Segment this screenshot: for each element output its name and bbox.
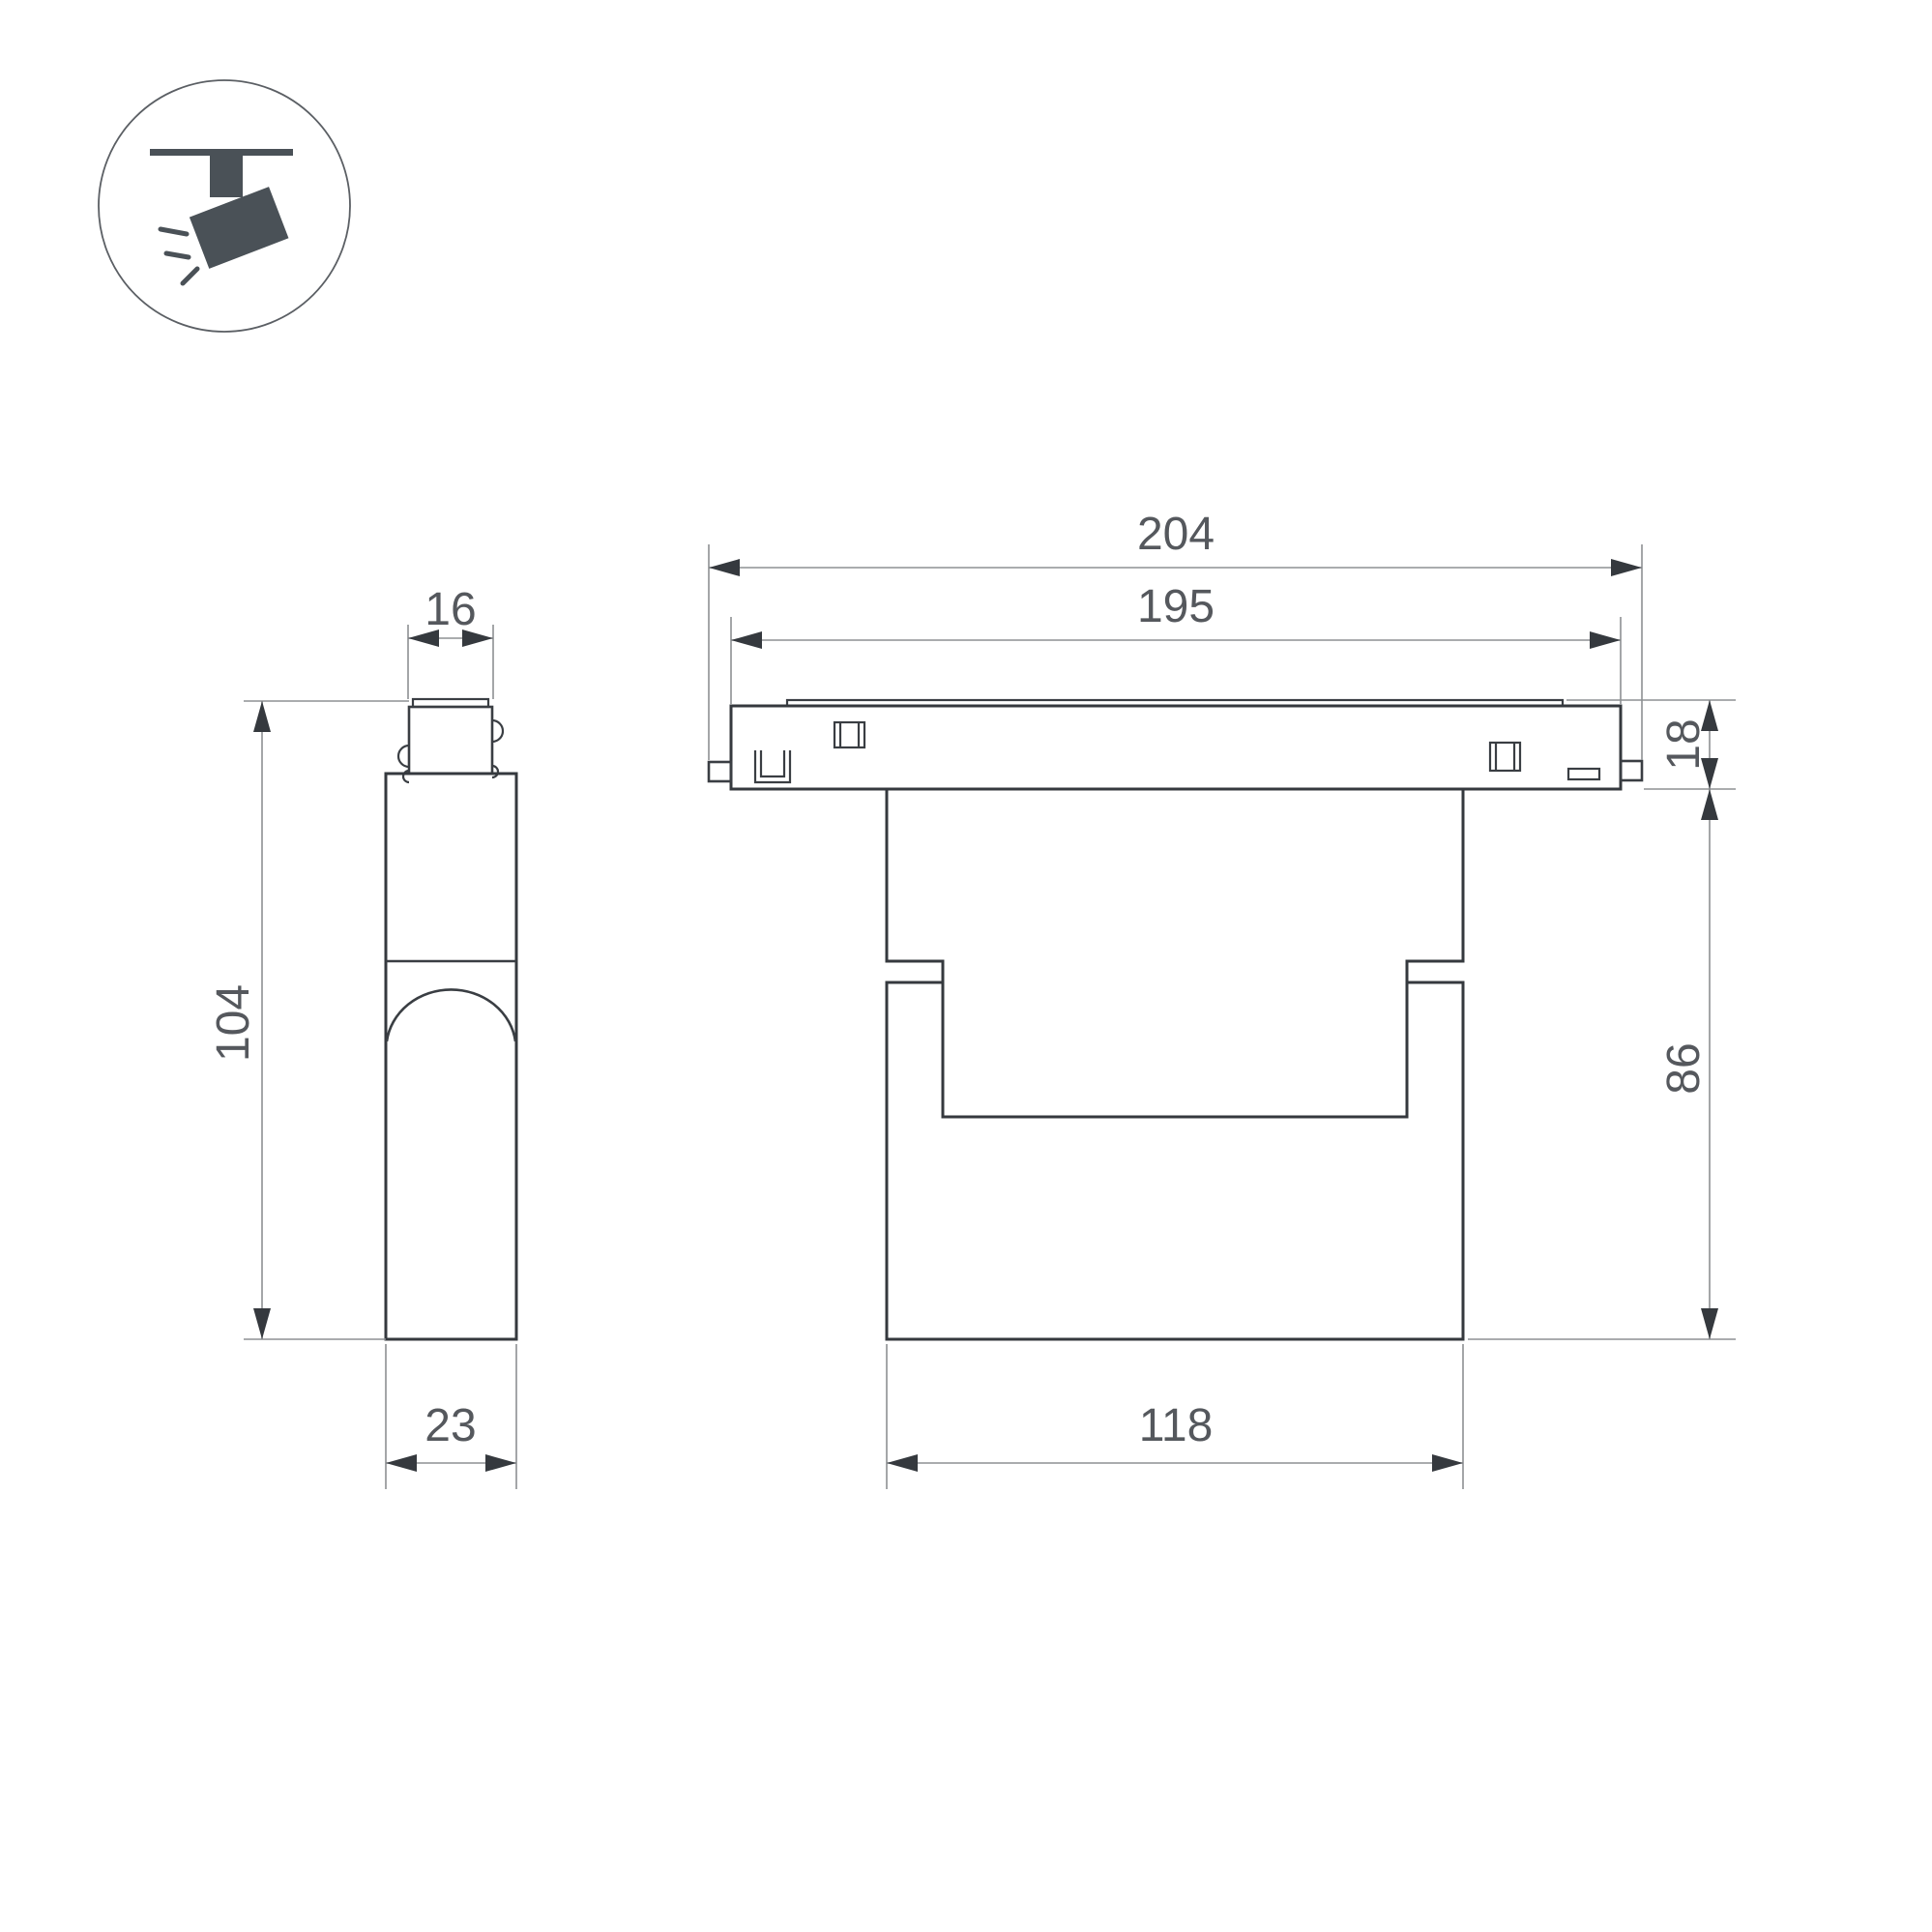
front-right-tab xyxy=(1621,761,1642,780)
dim-connector-width: 16 xyxy=(408,584,493,699)
front-head-outline xyxy=(943,963,1407,1117)
dim-overall-height: 104 xyxy=(208,701,409,1339)
dim-adapter-height: 18 xyxy=(1566,700,1736,789)
dimension-drawing-page: 16 104 23 xyxy=(0,0,1932,1932)
dim-label-204: 204 xyxy=(1137,509,1215,560)
side-body xyxy=(386,774,516,1339)
front-u-clip-inner xyxy=(761,750,784,776)
icon-light-ray xyxy=(183,269,197,283)
front-body xyxy=(887,789,1463,1339)
icon-light-ray xyxy=(166,253,189,257)
dim-depth: 23 xyxy=(386,1344,516,1489)
track-spotlight-icon xyxy=(99,80,350,332)
drawing-canvas: 16 104 23 xyxy=(0,0,1932,1932)
icon-light-ray xyxy=(161,229,187,234)
dim-label-16: 16 xyxy=(424,584,476,635)
front-slot xyxy=(1568,769,1599,779)
dim-label-86: 86 xyxy=(1658,1042,1710,1094)
side-clip-bump xyxy=(492,720,503,742)
front-left-tab xyxy=(709,762,731,781)
side-head-arch xyxy=(387,989,515,1041)
side-view: 16 104 23 xyxy=(208,584,516,1489)
dim-label-195: 195 xyxy=(1137,581,1215,632)
side-connector-body xyxy=(409,707,492,774)
dim-body-height: 86 xyxy=(1468,789,1736,1339)
dim-label-23: 23 xyxy=(424,1400,476,1451)
dim-body-width: 118 xyxy=(887,1344,1463,1489)
dim-adapter-width: 195 xyxy=(731,581,1621,704)
front-right-socket xyxy=(1490,743,1520,771)
icon-track-stem xyxy=(210,153,243,197)
side-clip-bump xyxy=(398,746,409,767)
dim-label-18: 18 xyxy=(1658,718,1710,770)
front-left-socket xyxy=(834,722,864,747)
front-view: 204 195 18 86 xyxy=(709,509,1736,1489)
icon-lamp-head xyxy=(190,187,289,269)
dim-label-104: 104 xyxy=(208,984,259,1062)
dim-label-118: 118 xyxy=(1139,1400,1214,1451)
